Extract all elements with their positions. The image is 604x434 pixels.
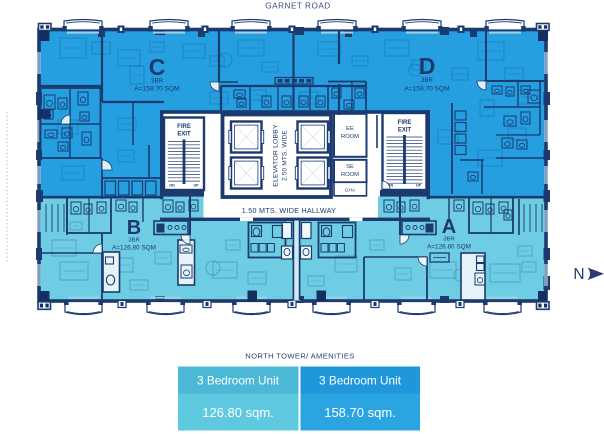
svg-text:158.70 sqm.: 158.70 sqm. <box>324 405 396 420</box>
svg-text:A=158.70 SQM: A=158.70 SQM <box>134 86 179 93</box>
svg-text:C: C <box>149 54 166 80</box>
svg-text:ROOM: ROOM <box>341 172 359 178</box>
svg-text:3 Bedroom Unit: 3 Bedroom Unit <box>319 374 402 388</box>
svg-text:2.50 MTS. WIDE: 2.50 MTS. WIDE <box>282 130 289 181</box>
svg-text:UP: UP <box>194 184 200 188</box>
svg-text:D: D <box>419 53 436 79</box>
svg-text:1.50 MTS. WIDE HALLWAY: 1.50 MTS. WIDE HALLWAY <box>242 206 336 215</box>
svg-text:A: A <box>442 216 456 238</box>
svg-text:SE: SE <box>346 164 354 170</box>
svg-text:FIRE: FIRE <box>177 124 191 130</box>
svg-text:3BR: 3BR <box>421 78 433 84</box>
svg-text:N: N <box>573 266 584 283</box>
svg-text:EXIT: EXIT <box>177 132 191 138</box>
svg-text:3 Bedroom Unit: 3 Bedroom Unit <box>197 374 280 388</box>
svg-text:A=126.80 SQM: A=126.80 SQM <box>427 244 471 251</box>
svg-text:126.80 sqm.: 126.80 sqm. <box>202 405 274 420</box>
svg-text:ELEVATOR LOBBY: ELEVATOR LOBBY <box>273 124 280 187</box>
svg-text:B: B <box>127 217 141 239</box>
svg-text:EXIT: EXIT <box>398 128 412 134</box>
svg-text:A=126.80 SQM: A=126.80 SQM <box>112 245 156 252</box>
svg-text:GARNET ROAD: GARNET ROAD <box>265 2 330 11</box>
svg-text:EE: EE <box>346 126 354 132</box>
svg-text:A=158.70 SQM: A=158.70 SQM <box>404 86 449 93</box>
svg-text:NORTH TOWER/ AMENITIES: NORTH TOWER/ AMENITIES <box>245 352 354 361</box>
svg-text:3BR: 3BR <box>151 79 163 85</box>
svg-text:GHA: GHA <box>345 188 356 194</box>
svg-text:3BR: 3BR <box>128 238 139 244</box>
svg-text:UP: UP <box>416 184 422 188</box>
svg-text:DN: DN <box>169 184 175 188</box>
svg-text:ROOM: ROOM <box>341 134 359 140</box>
svg-text:FIRE: FIRE <box>398 120 412 126</box>
svg-text:3BR: 3BR <box>443 237 454 243</box>
